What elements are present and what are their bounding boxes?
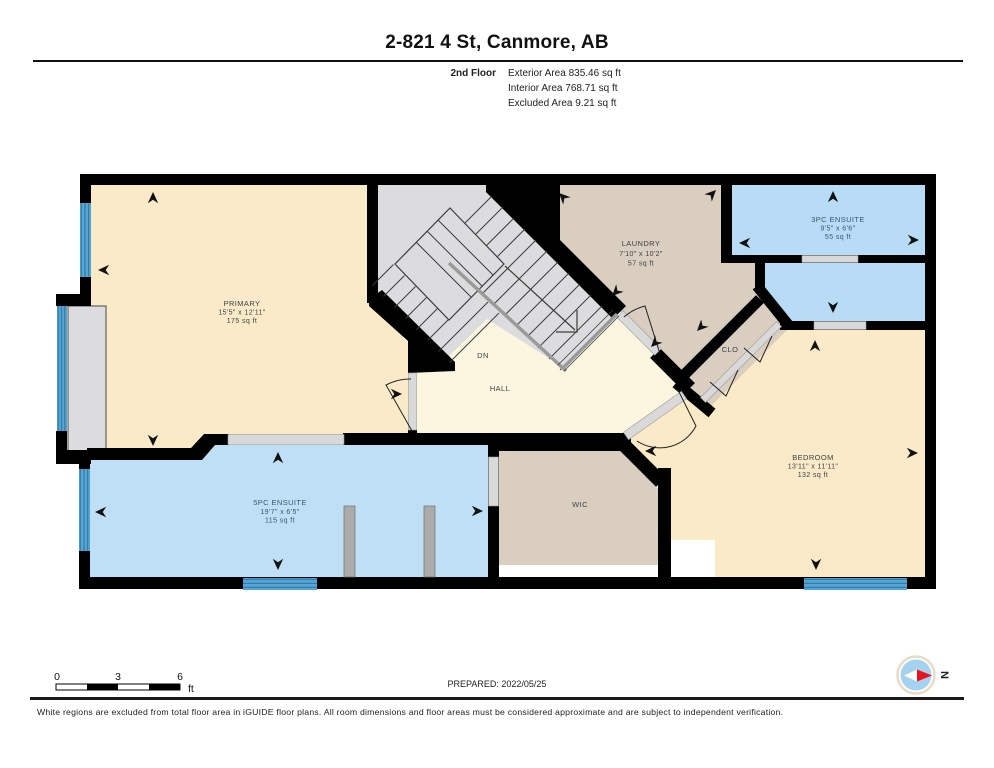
svg-text:19'7" x 6'5": 19'7" x 6'5" (260, 509, 299, 516)
svg-text:PRIMARY: PRIMARY (224, 299, 261, 308)
svg-text:5PC ENSUITE: 5PC ENSUITE (253, 498, 307, 507)
svg-text:9'5" x 6'6": 9'5" x 6'6" (820, 226, 855, 233)
svg-text:LAUNDRY: LAUNDRY (622, 239, 661, 248)
svg-text:WIC: WIC (572, 500, 588, 509)
svg-text:132 sq ft: 132 sq ft (798, 472, 828, 479)
svg-text:55 sq ft: 55 sq ft (825, 234, 851, 241)
svg-text:13'11" x 11'11": 13'11" x 11'11" (788, 464, 839, 471)
svg-text:BEDROOM: BEDROOM (792, 453, 834, 462)
svg-text:CLO: CLO (722, 345, 739, 354)
svg-text:DN: DN (477, 351, 489, 360)
svg-text:N: N (938, 671, 950, 679)
svg-text:7'10" x 10'2": 7'10" x 10'2" (619, 251, 663, 258)
svg-text:57 sq ft: 57 sq ft (628, 261, 654, 268)
svg-text:3PC ENSUITE: 3PC ENSUITE (811, 215, 865, 224)
svg-text:15'5" x 12'11": 15'5" x 12'11" (218, 310, 265, 317)
svg-text:175 sq ft: 175 sq ft (227, 318, 257, 325)
svg-text:HALL: HALL (490, 384, 510, 393)
svg-text:115 sq ft: 115 sq ft (265, 518, 295, 525)
